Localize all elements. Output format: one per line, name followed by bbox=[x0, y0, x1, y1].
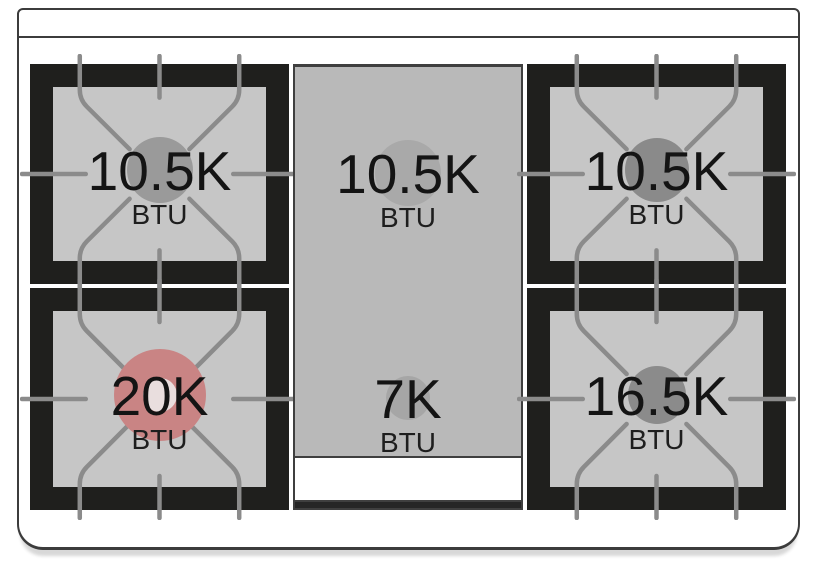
burner-cap bbox=[628, 366, 686, 424]
griddle-plate: 10.5K BTU 7K BTU bbox=[293, 64, 523, 510]
burner-cap bbox=[625, 138, 689, 202]
burner-grate-top-right: 10.5K BTU bbox=[527, 64, 786, 284]
burner-grate-bottom-left: 20K BTU bbox=[30, 288, 289, 510]
range-back-edge bbox=[19, 36, 798, 38]
burner-btu-unit: BTU bbox=[380, 204, 436, 232]
burner-cap-inner-ring bbox=[143, 378, 177, 412]
burner-cap-highlighted bbox=[114, 349, 206, 441]
burner-cap bbox=[127, 137, 193, 203]
burner-cap bbox=[375, 140, 441, 206]
burner-cap bbox=[386, 376, 430, 420]
cooktop-burner-diagram: 10.5K BTU 20K BTU 10.5K BTU 7K BTU bbox=[0, 0, 816, 568]
griddle-bottom-bar bbox=[295, 502, 521, 508]
burner-grate-top-left: 10.5K BTU bbox=[30, 64, 289, 284]
griddle-handle bbox=[295, 456, 521, 502]
burner-grate-bottom-right: 16.5K BTU bbox=[527, 288, 786, 510]
burner-btu-unit: BTU bbox=[380, 429, 436, 457]
griddle-burner-top: 10.5K BTU bbox=[295, 67, 521, 287]
